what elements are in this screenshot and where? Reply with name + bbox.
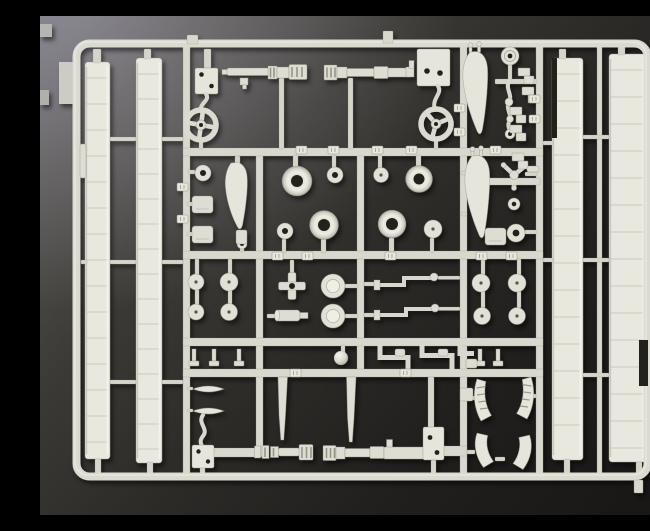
clip-fitting xyxy=(438,349,448,356)
runner-stem xyxy=(187,387,193,390)
mounting-plate-bottom-left xyxy=(192,445,214,468)
disc-dot xyxy=(194,310,197,313)
part-number-tab xyxy=(290,369,301,377)
mounting-plate-top-right xyxy=(417,49,450,86)
tire-hole xyxy=(386,218,398,230)
cross-fitting xyxy=(279,273,306,300)
runner-stem xyxy=(279,78,284,149)
clip-fitting xyxy=(80,144,86,178)
tire-hole xyxy=(414,174,425,185)
part-number-tab xyxy=(476,252,487,260)
part-number-tab xyxy=(454,104,465,112)
runner-bar xyxy=(183,251,543,259)
runner-stem xyxy=(321,239,326,253)
runner-stem xyxy=(431,460,436,474)
plate-stem-bottom-left xyxy=(201,415,205,446)
runner-stem xyxy=(110,137,136,141)
parts-sprue xyxy=(40,24,648,493)
runner-stem xyxy=(543,141,553,145)
t-stub-foot xyxy=(189,361,199,366)
part-number-tab xyxy=(529,95,540,103)
part-number-tab xyxy=(328,146,339,154)
disc-hole xyxy=(512,202,517,207)
runner-stem xyxy=(345,314,358,318)
runner-stem xyxy=(583,373,609,377)
cross-spoke-control-wheel xyxy=(186,110,216,140)
clip-fitting xyxy=(466,359,477,368)
tire-hole xyxy=(291,175,303,187)
t-stub xyxy=(192,349,196,361)
t-stub xyxy=(478,349,482,361)
runner-stem xyxy=(332,155,336,168)
step-bracket xyxy=(512,153,524,161)
gate-stub xyxy=(634,480,643,493)
part-number-tab xyxy=(385,252,396,260)
part-number-tab xyxy=(296,146,307,154)
t-stub xyxy=(237,349,241,361)
runner-stem xyxy=(147,462,153,474)
sprue-photo: Photograph of a light ivory injection-mo… xyxy=(40,16,650,515)
runner-stem xyxy=(195,259,199,275)
wedge-block xyxy=(192,196,213,213)
part-number-tab xyxy=(506,252,517,260)
runner-bar xyxy=(256,149,263,449)
runner-stem xyxy=(162,137,183,141)
linkage-chain xyxy=(508,81,510,132)
step-bracket xyxy=(518,68,530,76)
runner-stem xyxy=(81,260,87,264)
runner-stem xyxy=(162,380,183,384)
t-stub-foot xyxy=(493,361,503,366)
disc-plain xyxy=(507,116,514,123)
runner-stem xyxy=(110,380,136,384)
disc-hole xyxy=(513,230,520,237)
clip-fitting xyxy=(527,166,539,172)
disc-hole xyxy=(200,170,206,176)
t-stub xyxy=(496,349,500,361)
runner-stem xyxy=(564,459,570,474)
clip-fitting xyxy=(236,230,247,244)
runner-stem xyxy=(495,457,505,461)
runner-stem xyxy=(508,64,512,80)
t-stub-foot xyxy=(234,361,244,366)
runner-bar xyxy=(183,369,543,377)
disc-ball xyxy=(334,351,348,365)
runner-stem xyxy=(290,260,294,273)
step-bracket xyxy=(510,125,522,133)
runner-stem xyxy=(428,377,434,429)
disc-boss xyxy=(326,309,339,322)
disc-dot xyxy=(480,314,483,317)
runner-stem xyxy=(162,260,183,264)
runner-stem xyxy=(543,258,553,262)
runner-stem xyxy=(517,259,521,275)
machine-gun-top-right xyxy=(324,61,414,81)
disc-dot xyxy=(431,227,434,230)
gun-stalk-left xyxy=(278,377,288,440)
gate-stub xyxy=(187,35,198,44)
edge-object xyxy=(40,90,49,105)
runner-stem xyxy=(618,47,625,55)
runner-bar xyxy=(183,148,543,156)
runner-stem xyxy=(204,49,211,68)
runner-stem xyxy=(282,239,286,253)
runner-stem xyxy=(559,49,566,59)
t-stub-foot xyxy=(209,361,219,366)
runner-stem xyxy=(378,155,382,169)
runner-stem xyxy=(467,450,475,454)
propeller-blade-center xyxy=(225,162,247,228)
wing-strip-left xyxy=(136,58,162,463)
mounting-plate-top-left xyxy=(195,68,218,94)
disc-dot xyxy=(515,281,518,284)
step-bracket xyxy=(516,133,526,141)
machine-gun-top-left xyxy=(222,65,307,90)
gate-stub xyxy=(383,31,393,43)
strip-notch xyxy=(552,58,557,138)
runner-stem xyxy=(188,170,195,174)
propeller-blade-mid-right xyxy=(465,146,490,238)
gun-stalk-right xyxy=(347,377,357,442)
runner-stem xyxy=(438,276,460,280)
disc-dot xyxy=(379,173,382,176)
cowl-shell-plain-right xyxy=(513,435,531,470)
step-bracket xyxy=(510,107,522,115)
leaf-blade xyxy=(193,386,224,392)
disc-dot xyxy=(194,280,197,283)
step-bracket xyxy=(516,115,526,123)
runner-stem xyxy=(389,238,394,252)
runner-stem xyxy=(461,212,467,216)
step-bracket xyxy=(522,87,534,95)
disc-dot xyxy=(227,280,230,283)
runner-stem xyxy=(416,155,421,167)
runner-stem xyxy=(583,258,609,262)
part-number-tab xyxy=(400,369,411,377)
runner-stem xyxy=(348,78,353,149)
part-number-tab xyxy=(302,252,313,260)
wedge-block xyxy=(192,226,213,243)
step-bracket xyxy=(518,161,528,169)
photo-edge-objects xyxy=(40,24,73,105)
runner-stem xyxy=(525,230,537,234)
part-number-tab xyxy=(529,115,540,123)
runner-stem xyxy=(345,284,358,288)
lever-lower xyxy=(374,304,439,320)
disc-dot xyxy=(515,314,518,317)
runner-stem xyxy=(195,289,199,305)
runner-stem xyxy=(228,259,232,275)
sprue-photo-canvas xyxy=(40,16,650,515)
part-number-tab xyxy=(177,183,188,191)
cowl-shell-louvered-left xyxy=(474,379,491,421)
part-number-tab xyxy=(454,128,465,136)
part-number-tab xyxy=(177,215,188,223)
runner-stem xyxy=(110,260,136,264)
disc-dot xyxy=(479,281,482,284)
cylinder-fitting xyxy=(275,310,309,321)
runner-stem xyxy=(228,289,232,305)
strip-notch xyxy=(639,340,648,386)
cowl-shell-louvered-right xyxy=(517,377,534,419)
step-bracket xyxy=(524,76,534,84)
runner-stem xyxy=(187,409,193,412)
machine-gun-bottom-left xyxy=(255,445,314,461)
clip-fitting xyxy=(460,388,473,401)
tire-hole xyxy=(318,219,330,231)
runner-stem xyxy=(525,172,537,176)
runner-stem xyxy=(430,238,434,253)
part-number-tab xyxy=(490,146,501,154)
runner-stem xyxy=(481,291,485,308)
runner-stem xyxy=(95,459,101,474)
machine-gun-bottom-right xyxy=(323,440,424,461)
three-spoke-control-wheel xyxy=(421,109,451,139)
wedge-block xyxy=(485,228,506,245)
disc-hole xyxy=(508,54,513,59)
disc-boss xyxy=(326,279,339,292)
runner-stem xyxy=(517,291,521,308)
runner-bar xyxy=(536,46,543,474)
cowl-shell-plain-left xyxy=(475,433,493,468)
clip-fitting xyxy=(395,349,405,356)
runner-stem xyxy=(583,135,609,139)
part-number-tab xyxy=(406,146,417,154)
wing-strip-far-right xyxy=(609,54,646,462)
disc-hole xyxy=(282,228,288,234)
part-number-tab xyxy=(272,252,283,260)
leaf-blade xyxy=(193,408,224,414)
lever-upper xyxy=(374,273,438,290)
disc-hole xyxy=(332,172,338,178)
disc-dot xyxy=(227,310,230,313)
runner-stem xyxy=(438,307,460,311)
runner-stem xyxy=(481,259,485,275)
edge-object xyxy=(40,24,52,37)
runner-stem xyxy=(93,49,101,63)
edge-object xyxy=(59,62,73,104)
t-stub xyxy=(212,349,216,361)
runner-stem xyxy=(144,49,151,59)
runner-bar xyxy=(183,338,543,346)
disc-plain xyxy=(505,98,513,106)
mounting-plate-bottom-right xyxy=(423,427,444,460)
part-number-tab xyxy=(372,146,383,154)
